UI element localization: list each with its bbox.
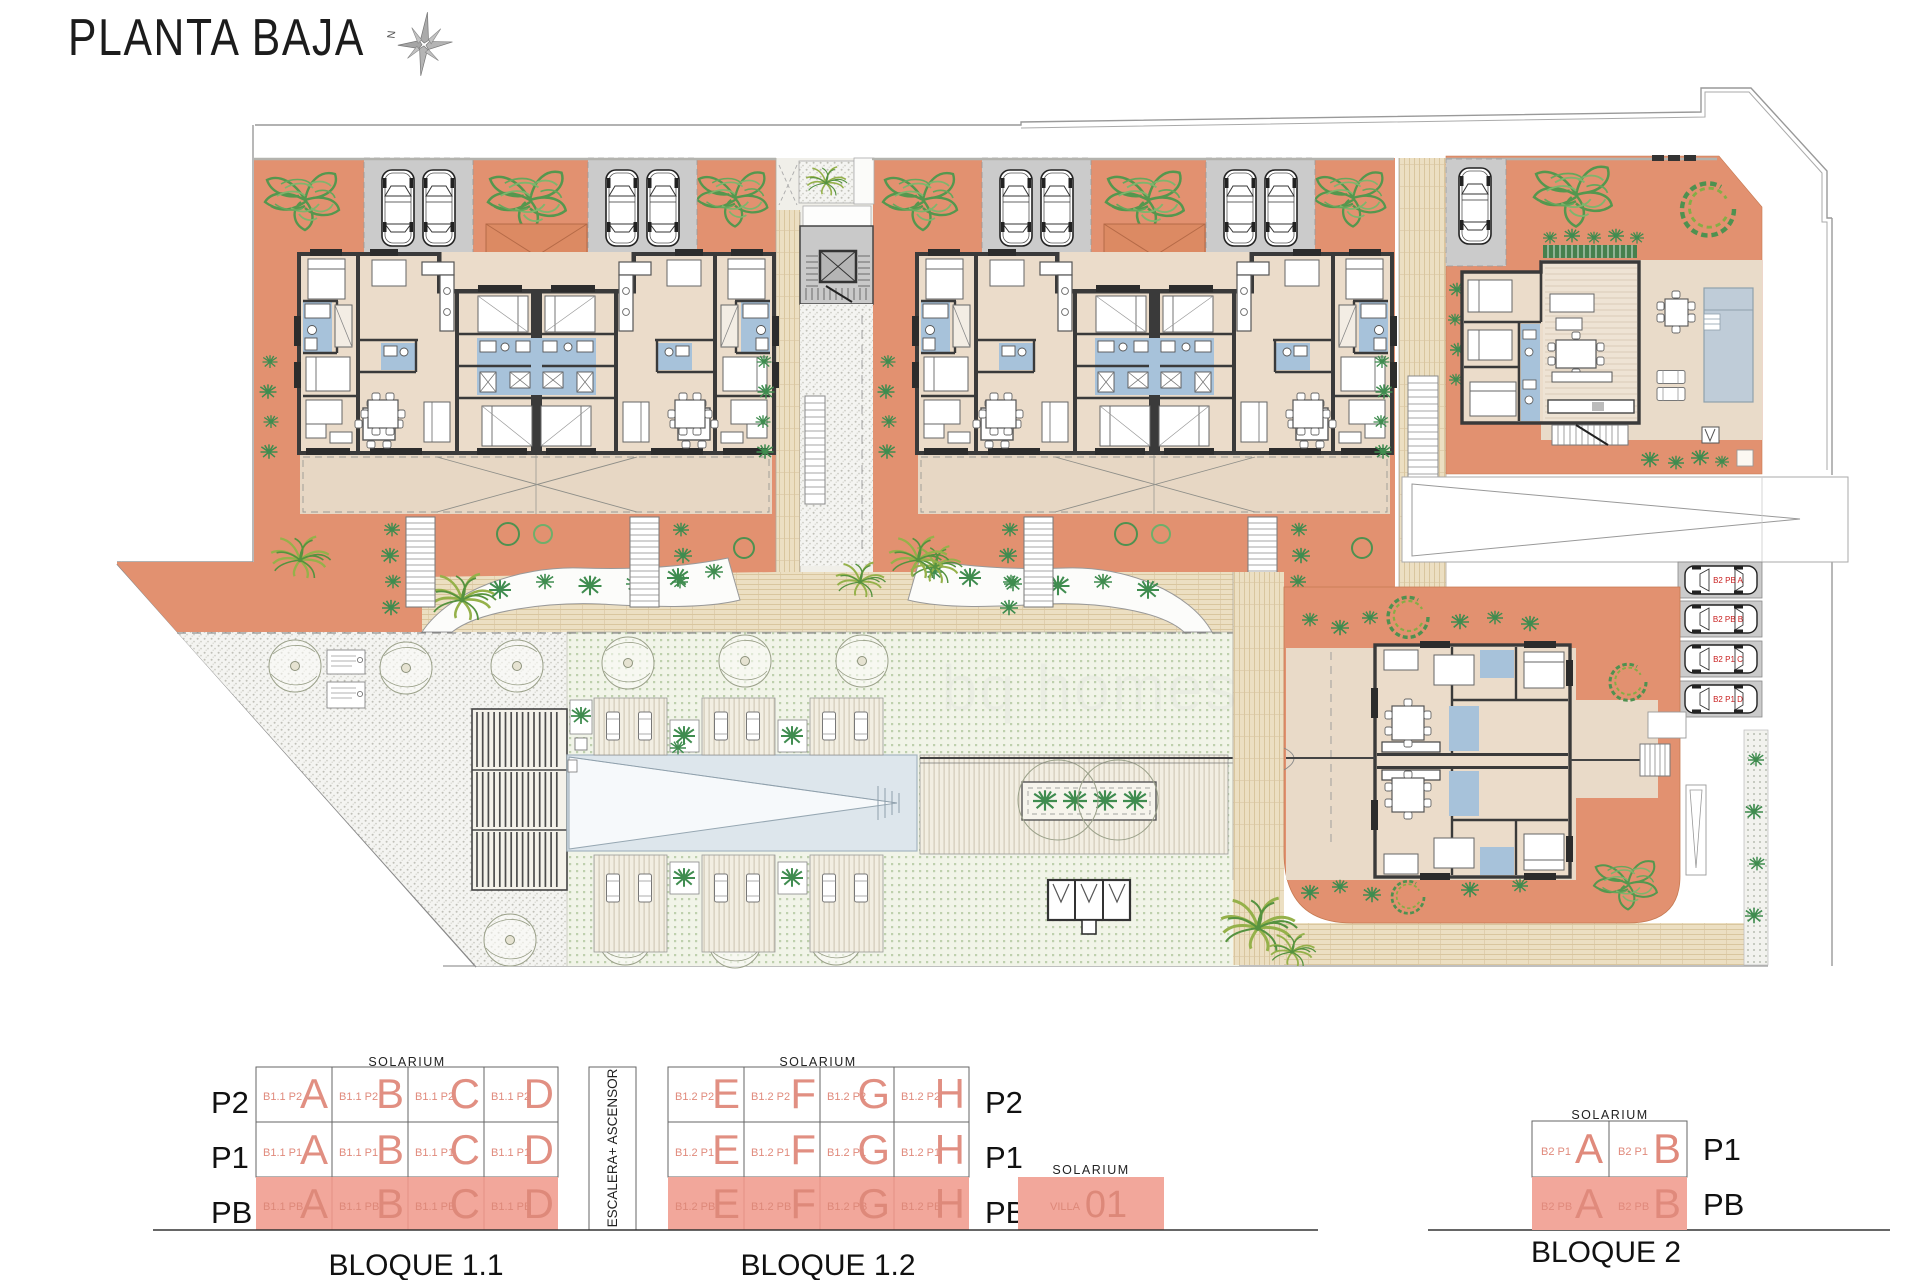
svg-text:B1.2 PB: B1.2 PB xyxy=(675,1201,715,1213)
svg-text:D: D xyxy=(524,1070,554,1117)
svg-text:C: C xyxy=(450,1180,480,1227)
svg-text:B2 PB: B2 PB xyxy=(1541,1201,1572,1213)
svg-text:B1.2 PB: B1.2 PB xyxy=(751,1201,791,1213)
svg-text:B: B xyxy=(376,1126,404,1173)
svg-text:BLOQUE 1.1: BLOQUE 1.1 xyxy=(328,1249,503,1280)
svg-text:E: E xyxy=(712,1070,740,1117)
svg-text:C: C xyxy=(450,1070,480,1117)
svg-text:A: A xyxy=(300,1070,328,1117)
svg-text:N: N xyxy=(386,30,399,39)
svg-text:E: E xyxy=(712,1180,740,1227)
svg-text:B2 P1: B2 P1 xyxy=(1618,1146,1648,1158)
svg-text:B2 PB: B2 PB xyxy=(1618,1201,1649,1213)
svg-text:B1.1 P1: B1.1 P1 xyxy=(339,1147,378,1159)
svg-text:H: H xyxy=(935,1180,965,1227)
svg-text:H: H xyxy=(935,1070,965,1117)
svg-text:B1.1 P2: B1.1 P2 xyxy=(263,1091,302,1103)
svg-text:PB: PB xyxy=(1703,1187,1744,1222)
svg-text:BLOQUE 1.2: BLOQUE 1.2 xyxy=(740,1249,915,1280)
svg-text:P1: P1 xyxy=(211,1140,249,1175)
svg-text:A: A xyxy=(300,1126,328,1173)
svg-text:BLOQUE 2: BLOQUE 2 xyxy=(1531,1236,1681,1269)
svg-text:B1.1 P2: B1.1 P2 xyxy=(339,1091,378,1103)
svg-text:B1.1 PB: B1.1 PB xyxy=(263,1201,303,1213)
svg-text:B2 PB A: B2 PB A xyxy=(1713,576,1743,585)
svg-text:SOLARIUM: SOLARIUM xyxy=(1052,1163,1129,1177)
svg-text:SOLARIUM: SOLARIUM xyxy=(1571,1108,1648,1122)
svg-text:B1.2 P1: B1.2 P1 xyxy=(675,1147,714,1159)
svg-text:B: B xyxy=(1653,1125,1681,1172)
svg-text:G: G xyxy=(857,1070,890,1117)
svg-text:B1.1 P1: B1.1 P1 xyxy=(263,1147,302,1159)
svg-text:B1.2 P1: B1.2 P1 xyxy=(751,1147,790,1159)
svg-text:D: D xyxy=(524,1126,554,1173)
svg-text:F: F xyxy=(790,1180,816,1227)
svg-text:G: G xyxy=(857,1126,890,1173)
svg-text:PLANTA BAJA: PLANTA BAJA xyxy=(68,9,365,67)
svg-text:A: A xyxy=(1575,1180,1603,1227)
svg-text:B1.2 P2: B1.2 P2 xyxy=(751,1091,790,1103)
svg-text:VILLA: VILLA xyxy=(1050,1201,1081,1213)
svg-text:A: A xyxy=(300,1180,328,1227)
svg-text:F: F xyxy=(790,1070,816,1117)
svg-text:ESCALERA+ ASCENSOR: ESCALERA+ ASCENSOR xyxy=(605,1068,620,1227)
svg-text:P1: P1 xyxy=(985,1140,1023,1175)
svg-text:H: H xyxy=(935,1126,965,1173)
svg-text:B2 P1 D: B2 P1 D xyxy=(1713,695,1743,704)
svg-text:01: 01 xyxy=(1085,1184,1127,1226)
svg-text:P2: P2 xyxy=(211,1085,249,1120)
svg-text:B1.1 P1: B1.1 P1 xyxy=(415,1147,454,1159)
svg-text:B: B xyxy=(376,1180,404,1227)
svg-text:B1.2 P2: B1.2 P2 xyxy=(675,1091,714,1103)
svg-text:A: A xyxy=(1575,1125,1603,1172)
svg-text:D: D xyxy=(524,1180,554,1227)
svg-text:G: G xyxy=(857,1180,890,1227)
svg-text:P1: P1 xyxy=(1703,1132,1741,1167)
svg-text:PB: PB xyxy=(211,1195,252,1230)
svg-text:B1.1 P2: B1.1 P2 xyxy=(415,1091,454,1103)
svg-text:E: E xyxy=(712,1126,740,1173)
svg-text:B2 P1: B2 P1 xyxy=(1541,1146,1571,1158)
svg-text:C: C xyxy=(450,1126,480,1173)
svg-text:bq homes: bq homes xyxy=(941,652,1238,724)
svg-text:B: B xyxy=(1653,1180,1681,1227)
svg-text:P2: P2 xyxy=(985,1085,1023,1120)
svg-text:F: F xyxy=(790,1126,816,1173)
svg-text:B: B xyxy=(376,1070,404,1117)
svg-text:B1.1 PB: B1.1 PB xyxy=(339,1201,379,1213)
svg-text:B2 PB B: B2 PB B xyxy=(1713,615,1743,624)
svg-text:B2 P1 C: B2 P1 C xyxy=(1713,655,1743,664)
